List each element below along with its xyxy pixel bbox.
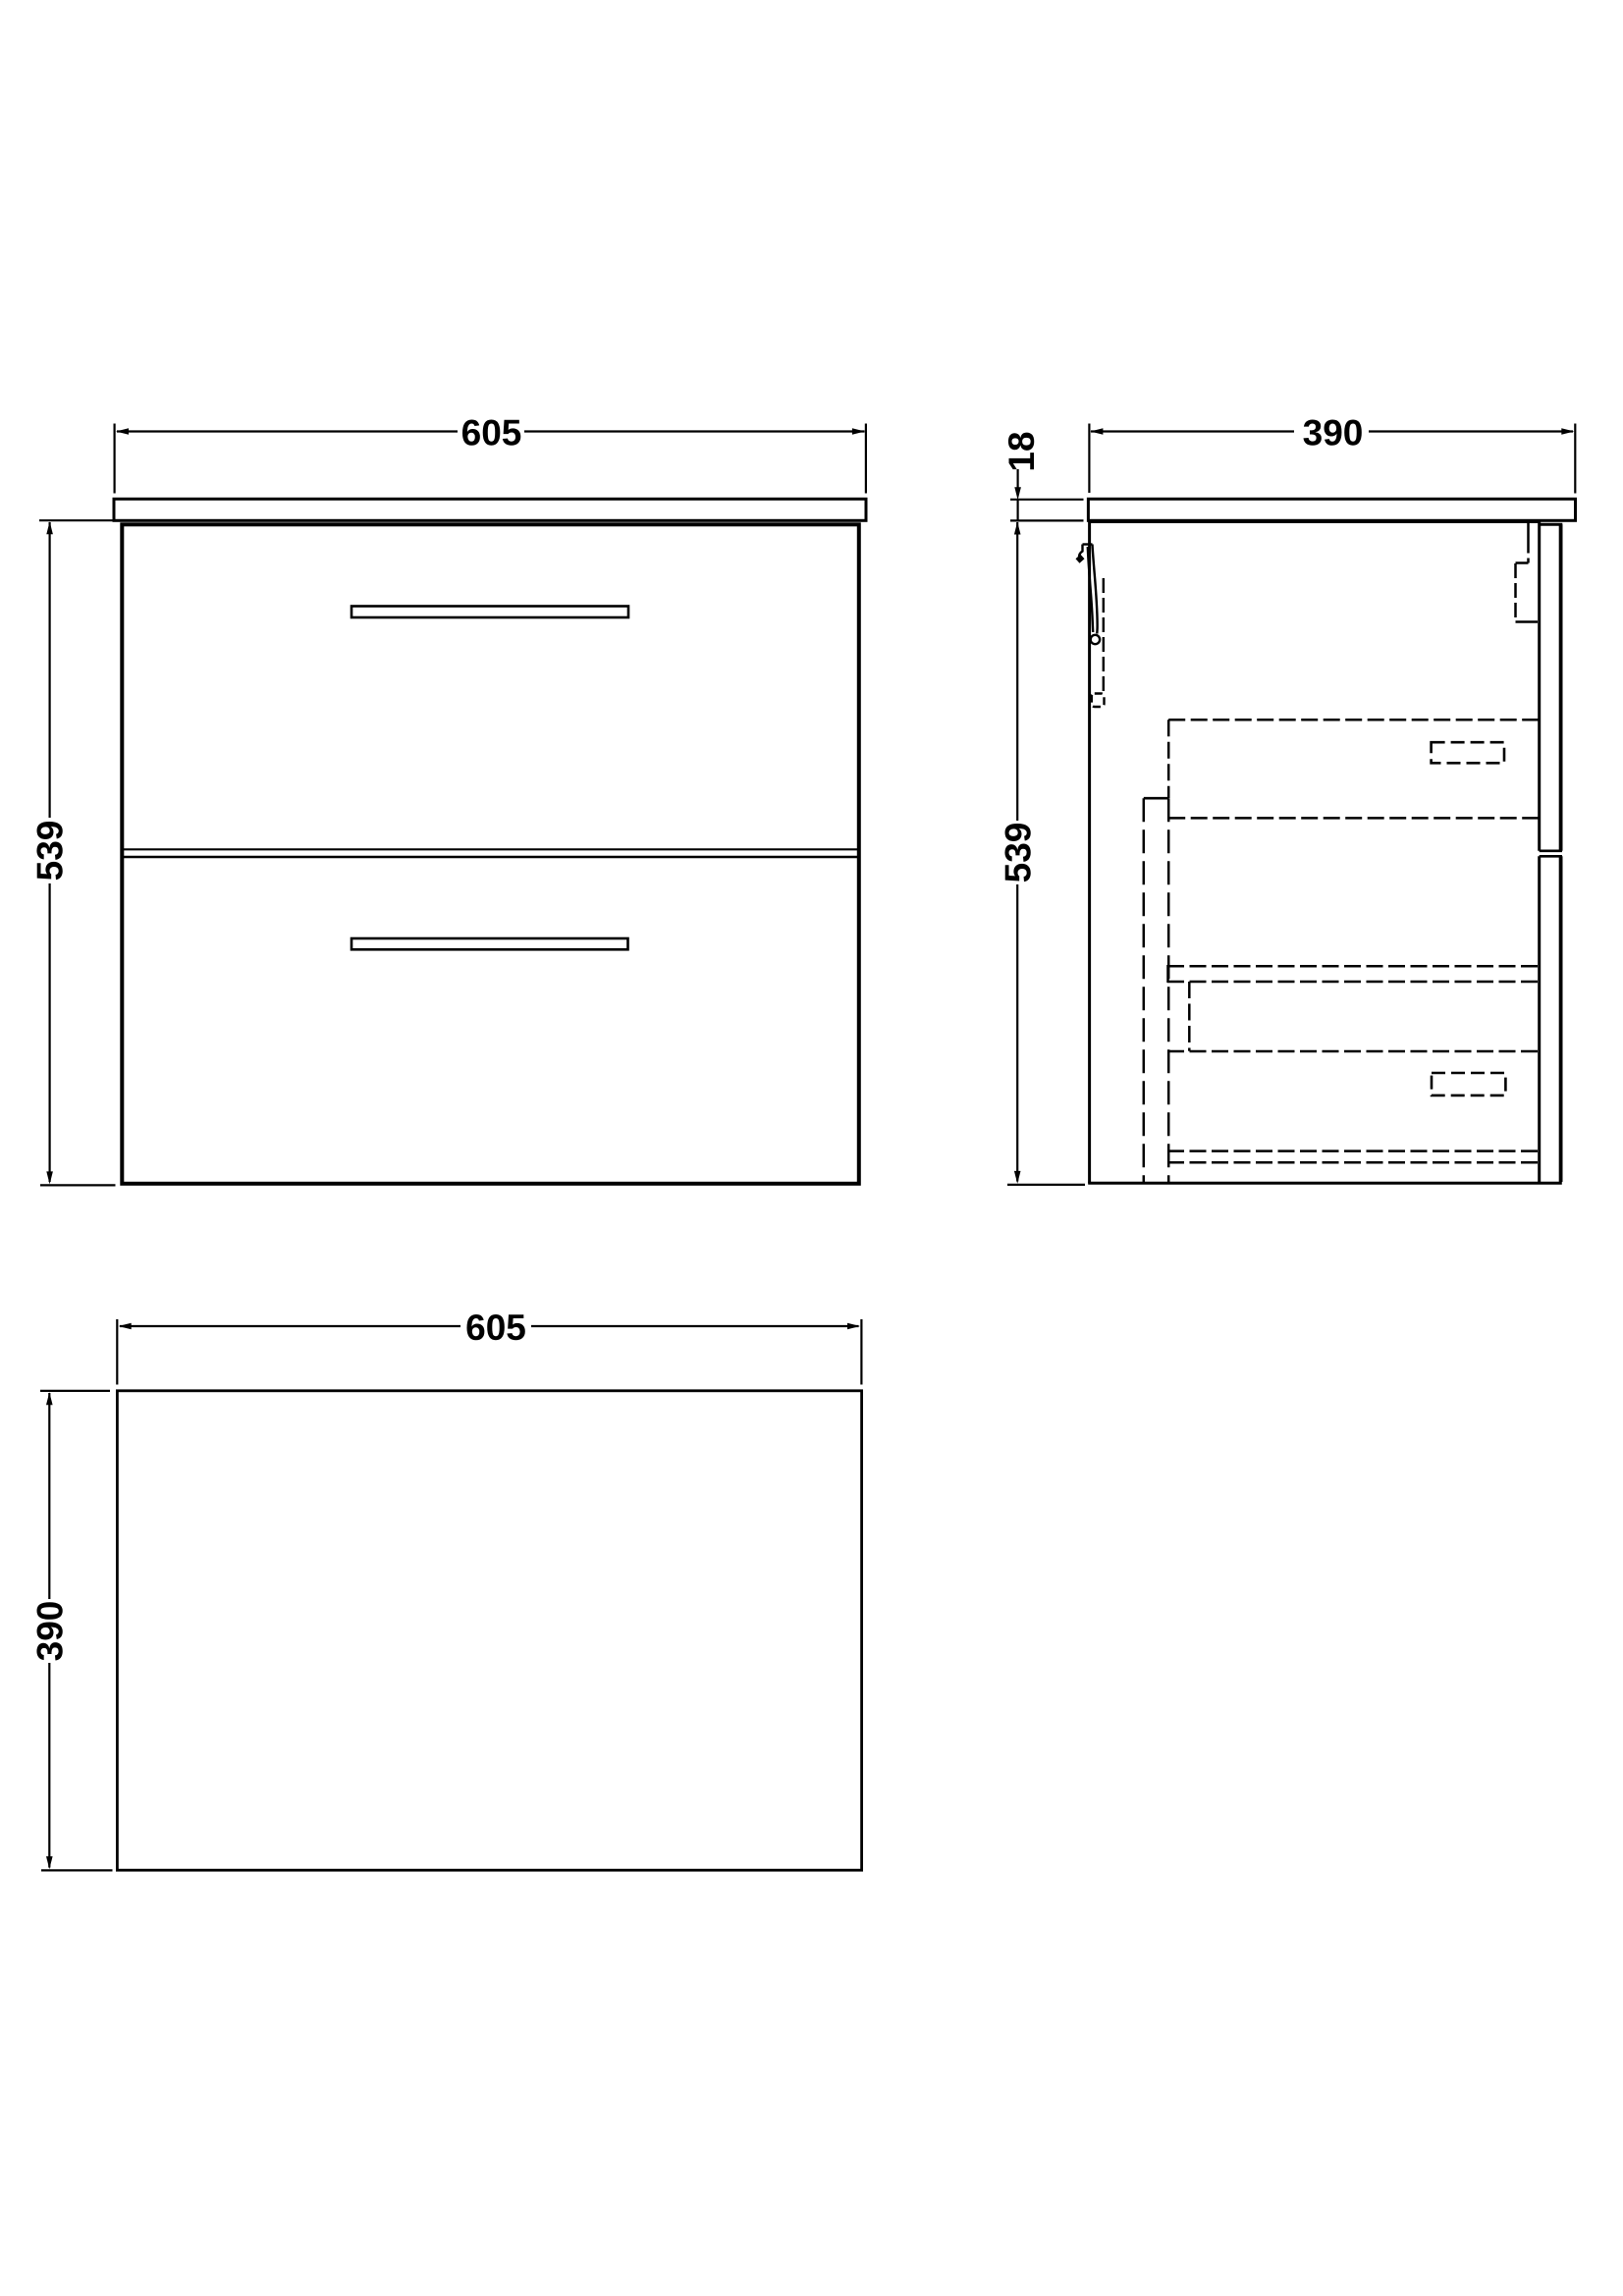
svg-text:539: 539 [999, 823, 1039, 883]
svg-text:539: 539 [29, 821, 70, 881]
svg-text:605: 605 [461, 413, 522, 454]
svg-text:390: 390 [30, 1601, 71, 1662]
svg-text:605: 605 [465, 1308, 526, 1348]
svg-text:18: 18 [1001, 431, 1042, 471]
svg-text:390: 390 [1303, 413, 1364, 454]
